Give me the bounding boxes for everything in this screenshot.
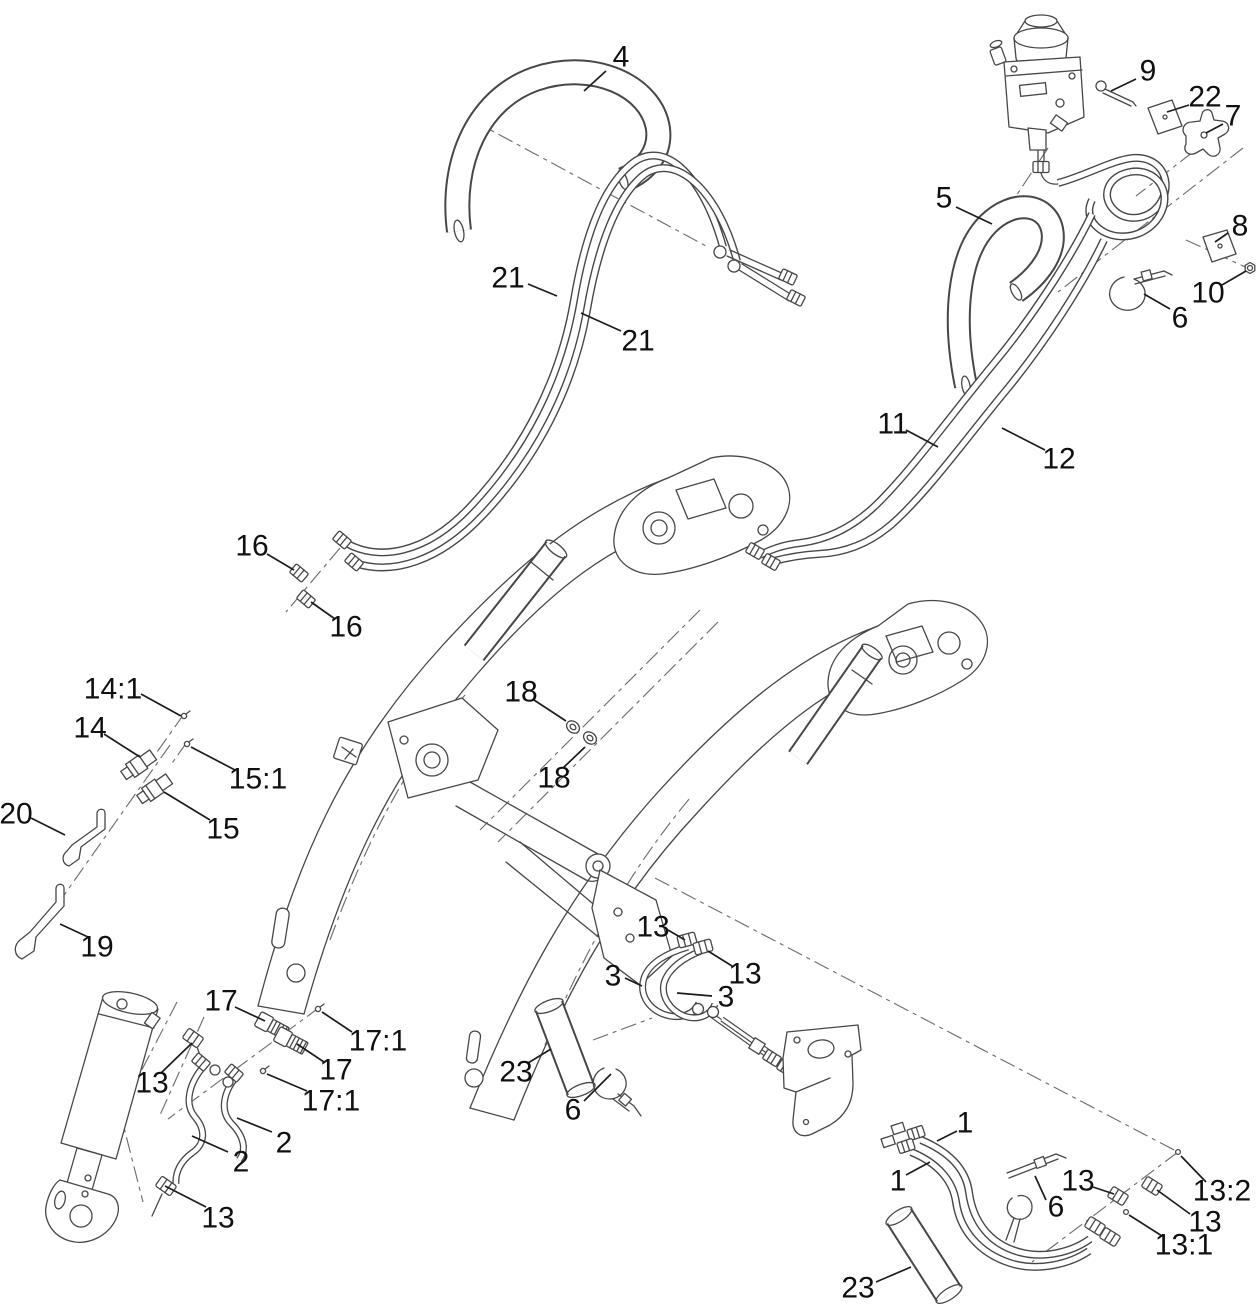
- leader-line-14-17: [104, 734, 140, 757]
- leader-line-13-35: [165, 1186, 206, 1207]
- callout-18-15: 18: [537, 762, 570, 795]
- bracket-20: [63, 809, 105, 866]
- leader-line-20-20: [31, 818, 65, 835]
- cable-tie-mid: [593, 1068, 641, 1116]
- callout-14-17: 14: [73, 712, 106, 745]
- quick-attach-assembly: [333, 698, 672, 985]
- callout-13:1-42: 13:1: [1155, 1229, 1213, 1262]
- hydraulic-cylinder: [46, 987, 160, 1242]
- nut-10: [1245, 263, 1255, 274]
- leader-line-6-7: [1144, 294, 1170, 309]
- fittings-17: [254, 1004, 324, 1074]
- callout-6-7: 6: [1172, 302, 1189, 335]
- callout-3-25: 3: [718, 981, 735, 1014]
- leader-line-21-8: [528, 284, 557, 296]
- callout-11-10: 11: [877, 408, 908, 441]
- callout-21-8: 21: [491, 262, 524, 295]
- callout-22-2: 22: [1188, 81, 1221, 114]
- callout-15-19: 15: [206, 813, 239, 846]
- callout-17:1-30: 17:1: [302, 1085, 360, 1118]
- leader-line-23-43: [876, 1267, 911, 1282]
- leader-line-6-39: [1035, 1176, 1046, 1200]
- leader-line-1-36: [937, 1131, 957, 1141]
- clamp-7: [1183, 110, 1228, 157]
- lift-arm-right: [465, 601, 987, 1120]
- washers-18: [564, 718, 599, 746]
- callout-15:1-18: 15:1: [229, 763, 287, 796]
- callout-20-20: 20: [0, 798, 33, 831]
- callout-9-1: 9: [1140, 55, 1157, 88]
- leader-line-2-32: [237, 1118, 272, 1132]
- callout-17:1-27: 17:1: [349, 1025, 407, 1058]
- exploded-parts-diagram: 4922758106212111121616181814:11415:11520…: [0, 0, 1258, 1315]
- callout-13-35: 13: [201, 1202, 234, 1235]
- callout-21-9: 21: [621, 325, 654, 358]
- callout-6-33: 6: [565, 1094, 582, 1127]
- hose-guard-4: [452, 72, 658, 242]
- callout-2-34: 2: [233, 1146, 250, 1179]
- leader-line-14:1-16: [141, 694, 181, 716]
- fittings-14-15: [119, 711, 193, 806]
- callout-3-24: 3: [605, 960, 622, 993]
- leader-line-9-1: [1111, 79, 1136, 91]
- sleeve-23-bottom: [883, 1203, 964, 1307]
- callout-1-37: 1: [890, 1165, 907, 1198]
- callout-12-11: 12: [1042, 443, 1075, 476]
- callout-7-3: 7: [1225, 100, 1242, 133]
- callout-19-21: 19: [80, 931, 113, 964]
- parts-diagram-page: 4922758106212111121616181814:11415:11520…: [0, 0, 1258, 1315]
- callout-1-36: 1: [957, 1107, 974, 1140]
- callout-6-39: 6: [1048, 1191, 1065, 1224]
- hoses-2: [152, 1028, 244, 1216]
- callout-23-43: 23: [841, 1272, 874, 1305]
- leader-line-13-41: [1157, 1190, 1190, 1214]
- callout-14:1-16: 14:1: [84, 673, 142, 706]
- callout-17-28: 17: [319, 1054, 352, 1087]
- leader-line-3-25: [677, 993, 712, 996]
- callout-13-22: 13: [636, 911, 669, 944]
- callout-13:2-40: 13:2: [1193, 1175, 1251, 1208]
- callout-23-31: 23: [499, 1056, 532, 1089]
- leader-line-18-14: [534, 700, 566, 721]
- callout-2-32: 2: [276, 1127, 293, 1160]
- callout-8-5: 8: [1232, 210, 1249, 243]
- bracket-19: [15, 884, 64, 959]
- sleeve-23-mid: [533, 995, 597, 1100]
- callout-18-14: 18: [504, 676, 537, 709]
- callout-4-0: 4: [613, 41, 630, 74]
- valve-assembly: [989, 15, 1084, 184]
- callout-13-38: 13: [1061, 1165, 1094, 1198]
- leader-line-17:1-27: [322, 1012, 352, 1032]
- leader-line-16-12: [267, 554, 294, 570]
- leader-line-15-19: [164, 792, 210, 820]
- callout-13-29: 13: [135, 1067, 168, 1100]
- callout-17-26: 17: [204, 985, 237, 1018]
- callout-16-13: 16: [329, 611, 362, 644]
- callout-10-6: 10: [1191, 277, 1224, 310]
- callout-16-12: 16: [235, 530, 268, 563]
- leader-line-1-37: [906, 1162, 930, 1175]
- leader-line-10-6: [1222, 271, 1246, 285]
- bolt-9: [1096, 81, 1136, 106]
- plate-22: [1148, 100, 1182, 134]
- leader-line-12-11: [1002, 428, 1045, 450]
- hose-bracket: [783, 1025, 861, 1136]
- callout-5-4: 5: [936, 182, 953, 215]
